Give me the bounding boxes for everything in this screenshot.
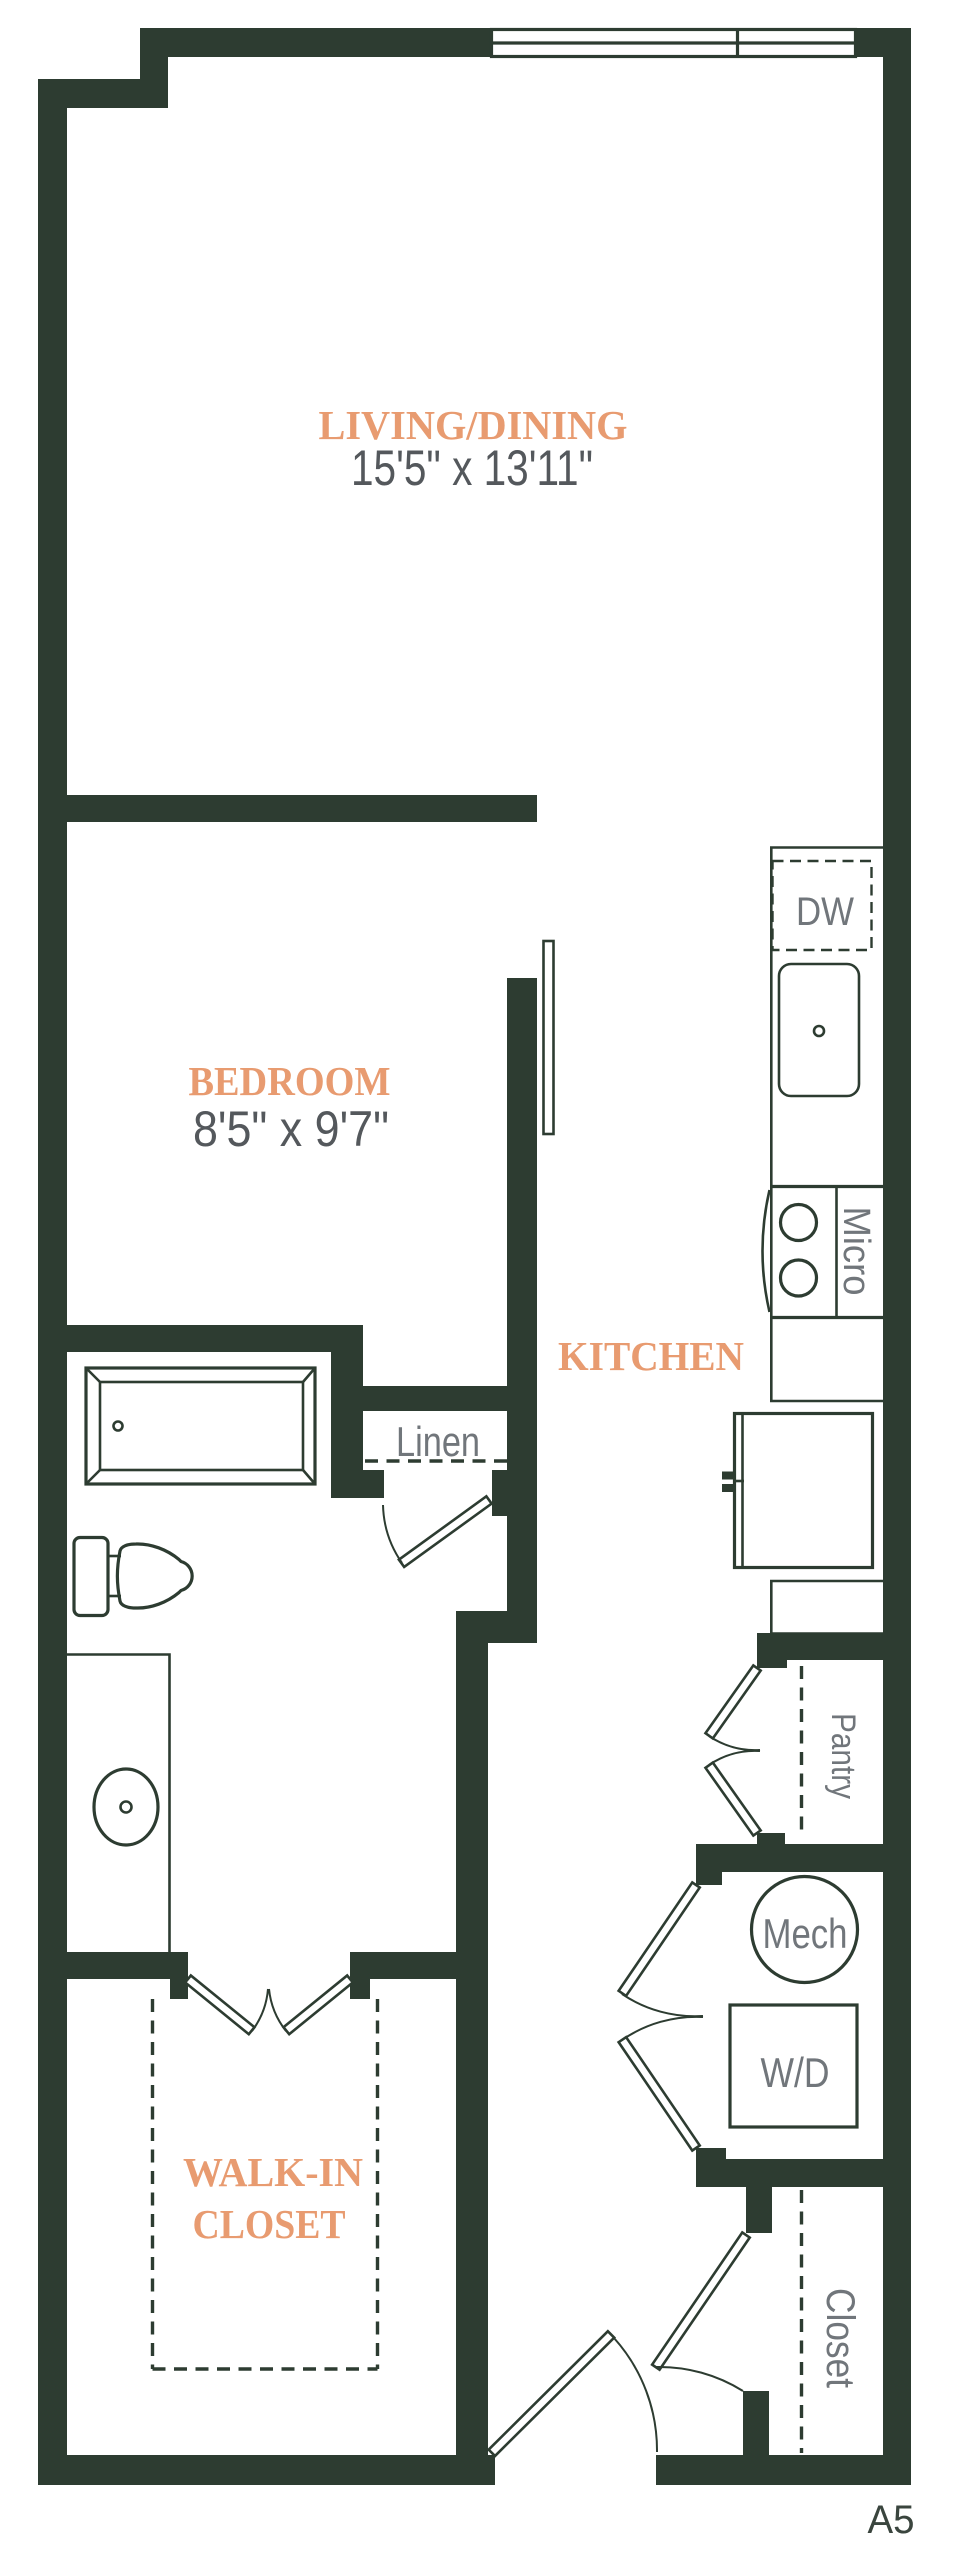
svg-text:Pantry: Pantry [824,1713,862,1799]
svg-text:Mech: Mech [763,1910,848,1957]
svg-text:KITCHEN: KITCHEN [558,1333,744,1379]
svg-text:BEDROOM: BEDROOM [189,1058,391,1104]
svg-text:Linen: Linen [396,1418,480,1465]
svg-text:WALK-IN: WALK-IN [183,2149,363,2195]
svg-text:W/D: W/D [761,2049,830,2096]
svg-text:Micro: Micro [835,1207,877,1296]
svg-text:15'5" x 13'11": 15'5" x 13'11" [351,440,593,496]
svg-text:8'5" x 9'7": 8'5" x 9'7" [193,1101,389,1157]
svg-text:CLOSET: CLOSET [193,2201,346,2247]
svg-text:Closet: Closet [818,2288,862,2388]
svg-text:DW: DW [796,890,854,934]
svg-text:A5: A5 [868,2498,915,2542]
